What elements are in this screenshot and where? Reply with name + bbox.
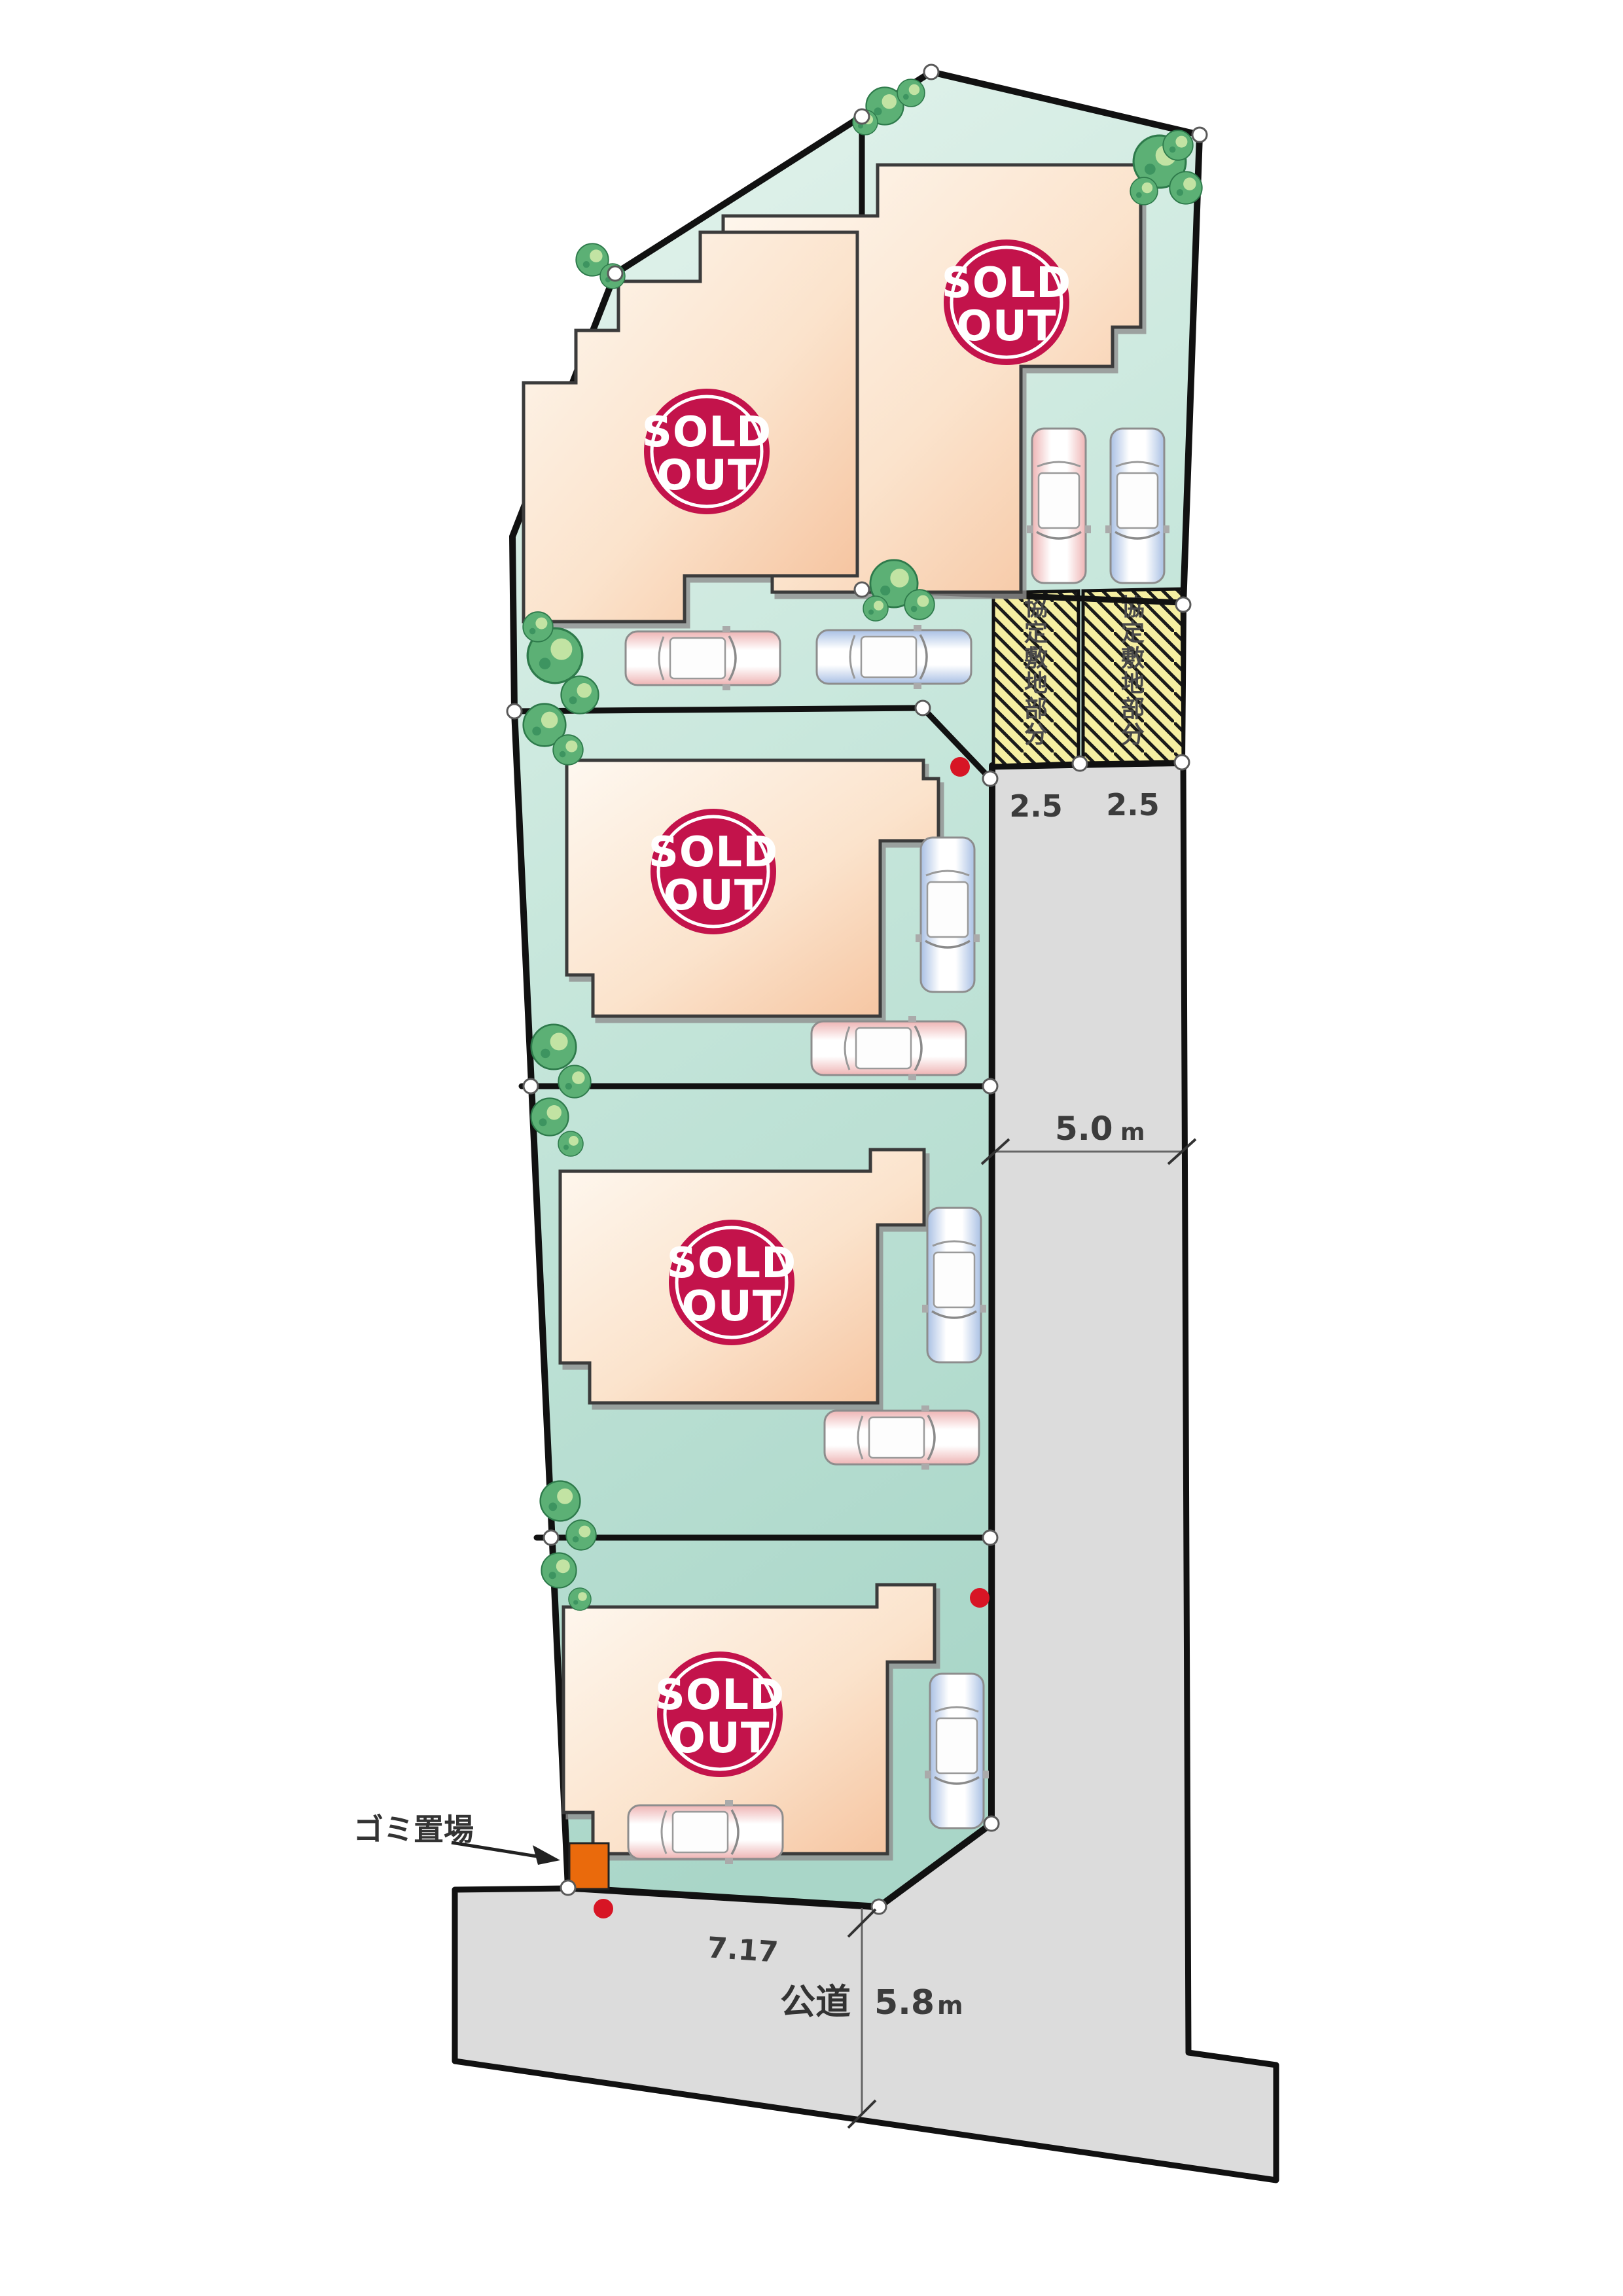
dim-5-8-label: 5.8 [874,1983,935,2022]
tree-icon [566,1520,596,1550]
dim-2-5-left: 2.5 [1009,788,1063,824]
dim-5-0-unit: m [1120,1119,1145,1146]
tree-icon [562,677,599,714]
vertex-dot [608,266,622,281]
svg-text:SOLD: SOLD [942,259,1071,308]
svg-text:OUT: OUT [956,302,1056,351]
svg-text:OUT: OUT [656,451,757,500]
agreement-area-left: 協定敷地部分 [993,591,1079,766]
car-icon [1027,429,1091,583]
car-icon [925,1674,989,1828]
tree-icon [863,596,888,621]
tree-icon [1130,177,1158,205]
vertex-dot [1073,756,1087,771]
svg-text:OUT: OUT [663,872,763,920]
tree-icon [569,1588,591,1610]
vertex-dot [1176,597,1190,612]
car-icon [1105,429,1169,583]
car-icon [811,1016,966,1080]
tree-icon [531,1025,576,1069]
vertex-dot [983,771,997,786]
vertex-dot [544,1530,558,1545]
car-icon [922,1208,986,1362]
red-marker-dot [594,1899,613,1918]
car-icon [817,625,971,689]
svg-text:SOLD: SOLD [667,1239,796,1288]
lot-map-canvas: 協定敷地部分 協定敷地部分 [0,0,1623,2296]
vertex-dot [855,109,869,124]
vertex-dot [524,1079,538,1093]
dim-7-17: 7.17 [706,1931,779,1969]
agreement-area-right: 協定敷地部分 [1083,589,1183,763]
tree-icon [558,1131,583,1156]
tree-icon [541,1481,580,1521]
vertex-dot [1192,128,1207,142]
dim-5-0-label: 5.0 [1055,1110,1113,1148]
vertex-dot [855,582,869,597]
vertex-dot [983,1530,997,1545]
vertex-dot [507,704,522,718]
svg-text:SOLD: SOLD [642,408,772,457]
dim-2-5-right: 2.5 [1106,787,1160,822]
vertex-dot [924,65,938,79]
svg-text:OUT: OUT [681,1282,781,1331]
tree-icon [531,1099,569,1136]
svg-text:SOLD: SOLD [649,828,778,877]
vertex-dot [561,1881,575,1895]
car-icon [628,1800,783,1864]
arrow-icon [533,1845,560,1865]
dim-5-8-unit: m [937,1991,963,2020]
vertex-dot [916,701,930,715]
vertex-dot [1175,755,1189,769]
garbage-annotation: ゴミ置場 [353,1812,560,1865]
tree-icon [523,612,553,642]
red-marker-dot [970,1588,990,1608]
tree-icon [553,735,583,765]
svg-text:SOLD: SOLD [655,1671,785,1720]
tree-icon [558,1065,590,1097]
tree-icon [1163,130,1193,160]
vertex-dot [983,1079,997,1093]
tree-icon [904,590,935,620]
agreement-label-left: 協定敷地部分 [1024,594,1048,748]
car-icon [916,838,980,992]
red-marker-dot [950,757,970,777]
svg-text:OUT: OUT [669,1714,770,1763]
public-road-label: 公道 [780,1981,851,2022]
car-icon [825,1405,979,1470]
tree-icon [541,1553,576,1587]
vertex-dot [984,1816,999,1831]
garbage-box [569,1843,609,1889]
tree-icon [897,79,925,107]
tree-icon [1169,171,1202,203]
agreement-label-right: 協定敷地部分 [1121,594,1145,748]
car-icon [626,626,780,690]
